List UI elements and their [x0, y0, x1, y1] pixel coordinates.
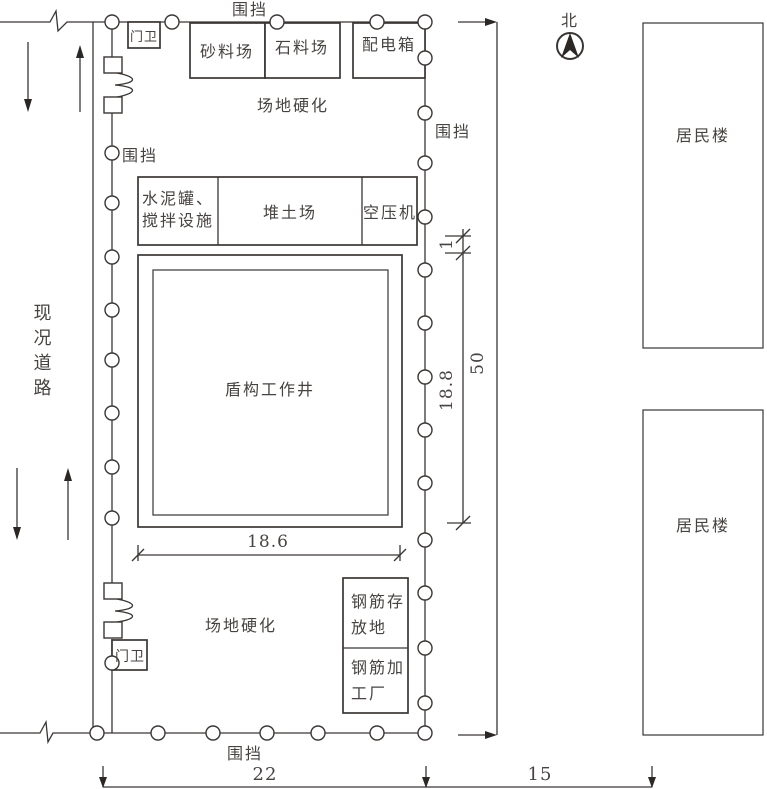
fence-post-icon: [270, 15, 284, 29]
air-compressor-label: 空压机: [363, 203, 417, 222]
dim-offset-label: 1: [437, 238, 457, 250]
fence-post-icon: [418, 15, 432, 29]
compass-needle-icon: [561, 33, 579, 58]
fence-label-bottom: 围挡: [227, 744, 263, 763]
residential-top-box: [643, 23, 763, 348]
gate-symbols: [104, 57, 133, 638]
traffic-arrows: [13, 42, 84, 540]
fence-post-icon: [311, 726, 325, 740]
arrow-up-bottom-head-icon: [64, 468, 72, 481]
fence-post-icon: [260, 726, 274, 740]
fence-post-icon: [418, 696, 432, 710]
fence-post-icon: [418, 210, 432, 224]
fence-post-icon: [418, 641, 432, 655]
gate-guard-top-label: 门卫: [130, 30, 158, 45]
fence-post-icon: [418, 423, 432, 437]
fence-post-icon: [418, 726, 432, 740]
north-label: 北: [561, 11, 579, 30]
residential-bottom-box: [643, 410, 763, 735]
dim-site-width-label: 22: [253, 764, 278, 785]
fence-post-icon: [105, 460, 119, 474]
dim-50-top-arrowhead-icon: [485, 18, 497, 26]
fence-post-icon: [418, 533, 432, 547]
sand-yard-label: 砂料场: [200, 42, 254, 61]
fence-post-icon: [206, 726, 220, 740]
gate-leaf-top-icon: [115, 73, 133, 97]
fence-post-icon: [370, 726, 384, 740]
dimension-shaft-height: 1 18.8: [437, 229, 471, 530]
fence-post-icon: [105, 250, 119, 264]
dim-50-bottom-arrowhead-icon: [485, 731, 497, 739]
existing-road-label: 现况道路: [31, 303, 52, 403]
fence-post-icon: [418, 476, 432, 490]
cement-mixing-label-line2: 搅拌设施: [142, 211, 214, 230]
fence-post-icon: [105, 146, 119, 160]
arrow-down-top-head-icon: [24, 99, 32, 112]
rebar-storage-label-line1: 钢筋存: [351, 592, 405, 611]
arrow-down-bottom-head-icon: [13, 527, 21, 540]
fence-post-icon: [418, 263, 432, 277]
fence-post-icon: [418, 316, 432, 330]
gate-post: [104, 583, 122, 599]
dim-site-length-label: 50: [468, 351, 488, 375]
fence-post-icon: [105, 15, 119, 29]
fence-post-icon: [105, 511, 119, 525]
cement-mixing-label-line1: 水泥罐、: [142, 189, 214, 208]
fence-post-icon: [418, 370, 432, 384]
dimension-shaft-width: 18.6: [132, 532, 406, 561]
rebar-workshop-label-line1: 钢筋加: [351, 658, 405, 677]
fence-post-icon: [165, 15, 179, 29]
rebar-workshop-label-line2: 工厂: [351, 684, 387, 703]
fence-post-icon: [105, 303, 119, 317]
fence-post-icon: [105, 353, 119, 367]
fence-post-icon: [418, 106, 432, 120]
fence-post-icon: [151, 726, 165, 740]
site-plan-drawing: 50 1 18.8 18.6 22 15 北: [0, 0, 767, 789]
rebar-storage-label-line2: 放地: [351, 618, 387, 637]
dim-shaft-height-label: 18.8: [437, 369, 457, 411]
gate-post: [104, 57, 122, 73]
soil-stockpile-label: 堆土场: [263, 203, 317, 222]
arrow-up-top-head-icon: [76, 45, 84, 58]
gate-guard-bottom-label: 门卫: [115, 649, 145, 665]
fence-label-left: 围挡: [122, 146, 158, 165]
fence-post-icon: [105, 406, 119, 420]
fence-post-icon: [105, 196, 119, 210]
gate-post: [104, 622, 122, 638]
dim-shaft-width-label: 18.6: [247, 532, 289, 552]
gate-post: [104, 97, 122, 113]
fence-post-icon: [418, 51, 432, 65]
fence-label-right: 围挡: [435, 122, 471, 141]
dim-gap-label: 15: [528, 764, 553, 785]
dimension-bottom: 22 15: [99, 764, 656, 788]
site-plan-canvas: 50 1 18.8 18.6 22 15 北: [0, 0, 767, 789]
shield-shaft-label: 盾构工作井: [225, 380, 315, 399]
fence-post-icon: [418, 156, 432, 170]
hardened-ground-bottom-label: 场地硬化: [205, 616, 277, 635]
gate-leaf-bottom-icon: [115, 599, 133, 622]
fence-post-icon: [418, 586, 432, 600]
stone-yard-label: 石料场: [275, 38, 329, 57]
hardened-ground-top-label: 场地硬化: [257, 96, 329, 115]
residential-bottom-label: 居民楼: [676, 516, 730, 535]
residential-top-label: 居民楼: [676, 126, 730, 145]
fence-label-top: 围挡: [232, 0, 268, 19]
fence-post-icon: [370, 15, 384, 29]
fence-post-icon: [90, 726, 104, 740]
north-compass: 北: [557, 11, 583, 59]
power-box-label: 配电箱: [362, 35, 416, 54]
